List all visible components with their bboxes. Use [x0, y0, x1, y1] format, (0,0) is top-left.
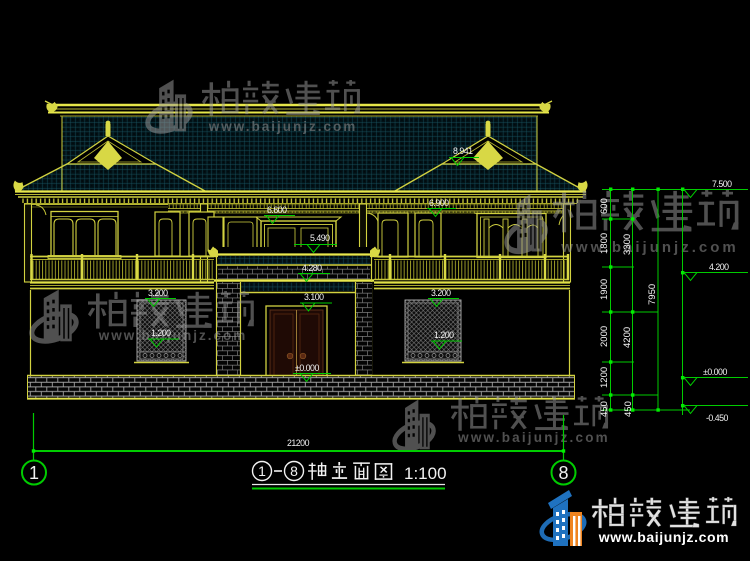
- svg-text:3.200: 3.200: [431, 288, 451, 298]
- svg-text:4200: 4200: [622, 327, 633, 348]
- svg-text:21200: 21200: [287, 438, 310, 448]
- svg-text:1:100: 1:100: [404, 464, 447, 483]
- svg-text:600: 600: [599, 198, 610, 214]
- svg-text:±0.000: ±0.000: [703, 367, 727, 377]
- svg-text:www.baijunjz.com: www.baijunjz.com: [98, 328, 248, 343]
- svg-text:1800: 1800: [599, 233, 610, 254]
- svg-text:7.500: 7.500: [712, 179, 732, 189]
- svg-text:1.200: 1.200: [151, 328, 171, 338]
- svg-text:4.200: 4.200: [709, 262, 729, 272]
- svg-text:1200: 1200: [599, 367, 610, 388]
- svg-text:1900: 1900: [599, 279, 610, 300]
- svg-text:www.baijunjz.com: www.baijunjz.com: [208, 119, 358, 134]
- svg-text:8.941: 8.941: [453, 146, 473, 156]
- svg-text:-0.450: -0.450: [706, 413, 729, 423]
- svg-text:www.baijunjz.com: www.baijunjz.com: [560, 239, 738, 256]
- svg-text:1: 1: [29, 463, 39, 483]
- svg-text:2000: 2000: [599, 326, 610, 347]
- svg-text:1.200: 1.200: [434, 330, 454, 340]
- svg-text:6.600: 6.600: [267, 205, 287, 215]
- svg-text:8: 8: [290, 463, 298, 479]
- svg-text:7950: 7950: [647, 284, 658, 305]
- svg-text:www.baijunjz.com: www.baijunjz.com: [457, 430, 610, 445]
- svg-text:1: 1: [258, 463, 266, 479]
- svg-text:450: 450: [599, 401, 610, 417]
- svg-text:±0.000: ±0.000: [295, 363, 319, 373]
- svg-text:8: 8: [558, 463, 568, 483]
- svg-text:3.200: 3.200: [148, 288, 168, 298]
- svg-text:5.490: 5.490: [310, 233, 330, 243]
- svg-text:3300: 3300: [622, 234, 633, 255]
- svg-text:3.100: 3.100: [304, 292, 324, 302]
- svg-text:www.baijunjz.com: www.baijunjz.com: [598, 529, 729, 545]
- svg-text:450: 450: [623, 401, 634, 417]
- svg-text:4.280: 4.280: [302, 263, 322, 273]
- svg-text:6.900: 6.900: [429, 198, 449, 208]
